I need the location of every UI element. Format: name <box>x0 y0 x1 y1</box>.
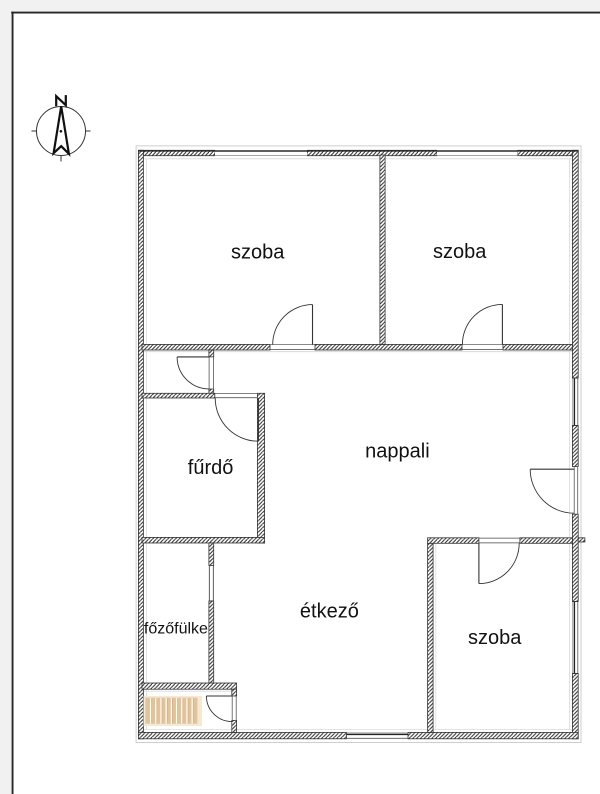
svg-text:szoba: szoba <box>231 242 285 264</box>
svg-text:étkező: étkező <box>300 601 359 623</box>
svg-text:nappali: nappali <box>365 440 430 462</box>
svg-text:szoba: szoba <box>468 627 522 649</box>
svg-text:fűrdő: fűrdő <box>188 457 234 479</box>
svg-text:szoba: szoba <box>433 241 487 263</box>
svg-text:főzőfülke: főzőfülke <box>144 621 208 638</box>
